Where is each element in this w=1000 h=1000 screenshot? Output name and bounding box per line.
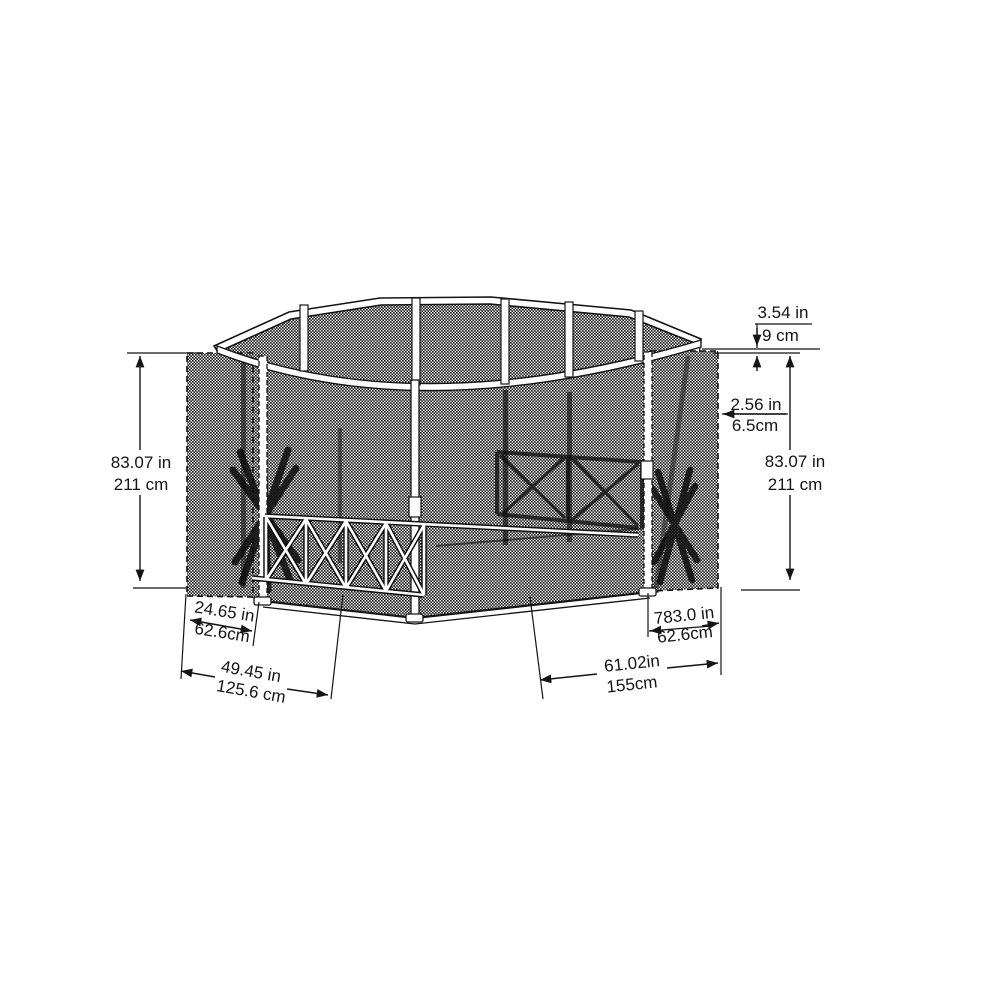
dim-top-rail-cm: 9 cm [762,326,799,345]
dim-front-right-panel-cm: 155cm [606,672,659,696]
screen-house-diagram: 83.07 in 211 cm 83.07 in 211 cm 3.54 in … [0,0,1000,1000]
dim-frame-thickness: 2.56 in 6.5cm [722,395,788,435]
dim-frame-thickness-cm: 6.5cm [732,416,778,435]
dim-left-height-in: 83.07 in [111,453,172,472]
dim-right-height-in: 83.07 in [765,452,826,471]
far-post-3 [338,428,342,563]
right-post-clip [641,461,653,479]
center-post-clip [409,497,421,517]
dim-right-height-cm: 211 cm [768,475,823,494]
far-post-1 [503,390,508,545]
mesh-body [218,298,700,618]
dim-right-side-panel: 783.0 in 62.6cm [648,593,719,647]
diagram-canvas: 83.07 in 211 cm 83.07 in 211 cm 3.54 in … [0,0,1000,1000]
dim-frame-thickness-in: 2.56 in [730,395,781,414]
structure [187,297,718,624]
dim-right-height: 83.07 in 211 cm [741,356,825,590]
dim-top-rail: 3.54 in 9 cm [702,303,820,371]
dim-top-rail-in: 3.54 in [757,303,808,322]
dim-left-height-cm: 211 cm [114,475,169,494]
